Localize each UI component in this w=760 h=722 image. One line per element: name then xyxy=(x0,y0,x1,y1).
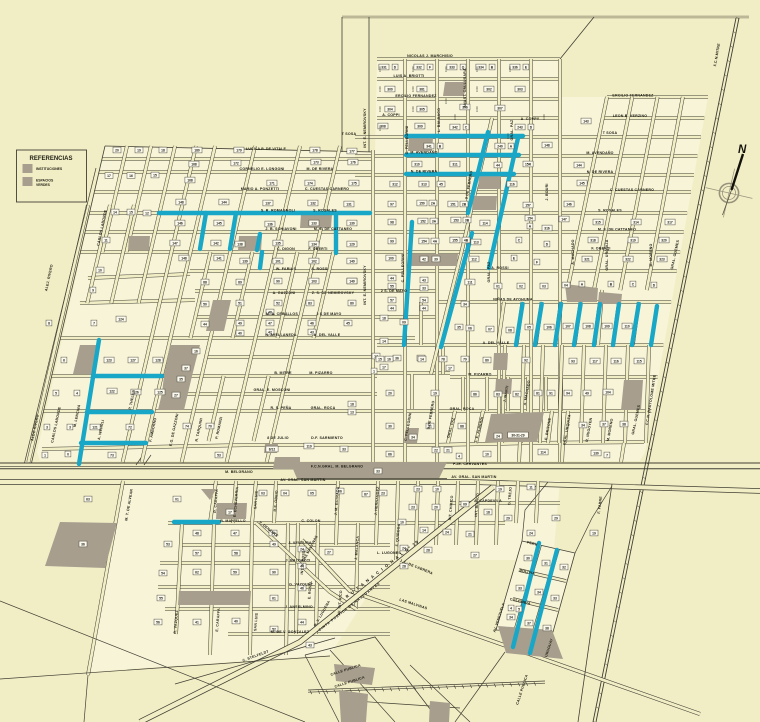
svg-text:117: 117 xyxy=(592,359,597,363)
svg-text:174: 174 xyxy=(307,181,313,185)
svg-text:LUIS A. BRIOTTI: LUIS A. BRIOTTI xyxy=(393,74,424,78)
svg-text:94: 94 xyxy=(566,391,570,395)
svg-text:100: 100 xyxy=(388,256,394,260)
svg-text:149: 149 xyxy=(349,259,355,263)
svg-text:09: 09 xyxy=(463,502,467,506)
svg-text:34: 34 xyxy=(411,435,415,439)
svg-text:CORNELIO E. LONGONI: CORNELIO E. LONGONI xyxy=(240,167,285,171)
svg-text:116: 116 xyxy=(509,182,514,186)
svg-text:15: 15 xyxy=(378,357,382,361)
svg-text:C. COLON: C. COLON xyxy=(301,519,320,523)
svg-text:58: 58 xyxy=(234,551,238,555)
svg-text:57: 57 xyxy=(195,551,199,555)
svg-text:GRAL. E. MOSCONI: GRAL. E. MOSCONI xyxy=(254,388,291,392)
svg-text:104: 104 xyxy=(605,390,611,394)
svg-text:336: 336 xyxy=(512,65,518,69)
svg-text:01: 01 xyxy=(175,497,179,501)
svg-text:168: 168 xyxy=(191,162,197,166)
svg-text:35: 35 xyxy=(179,377,183,381)
svg-text:AV. GRAL. SAN MARTIN: AV. GRAL. SAN MARTIN xyxy=(451,475,496,479)
svg-text:307: 307 xyxy=(497,106,503,110)
svg-text:168: 168 xyxy=(187,178,193,182)
svg-text:111: 111 xyxy=(467,280,472,284)
svg-text:INT. E. NEMIROVSKY: INT. E. NEMIROVSKY xyxy=(363,108,367,148)
svg-text:240: 240 xyxy=(497,144,503,148)
svg-text:32: 32 xyxy=(562,565,566,569)
svg-text:20: 20 xyxy=(434,505,438,509)
svg-text:91: 91 xyxy=(549,391,553,395)
svg-text:137: 137 xyxy=(265,201,271,205)
svg-text:63: 63 xyxy=(86,497,90,501)
svg-text:178: 178 xyxy=(312,148,318,152)
svg-text:177: 177 xyxy=(349,149,355,153)
svg-text:INSTITUCIONES: INSTITUCIONES xyxy=(36,167,63,171)
svg-text:C. CUESTAS CARNERO: C. CUESTAS CARNERO xyxy=(305,187,349,191)
svg-text:MARIO A. PONZETTI: MARIO A. PONZETTI xyxy=(241,187,280,191)
svg-text:318: 318 xyxy=(590,238,596,242)
svg-text:332: 332 xyxy=(416,65,422,69)
svg-text:320: 320 xyxy=(661,238,667,242)
svg-text:103: 103 xyxy=(311,279,317,283)
svg-text:34: 34 xyxy=(463,302,467,306)
svg-text:4A: 4A xyxy=(433,239,438,243)
svg-text:148: 148 xyxy=(178,200,184,204)
svg-text:M. DE RIVERA: M. DE RIVERA xyxy=(307,167,334,171)
svg-text:1000: 1000 xyxy=(411,66,415,72)
svg-text:M. E. DE CATTANEO: M. E. DE CATTANEO xyxy=(598,228,636,232)
svg-text:10: 10 xyxy=(98,268,102,272)
svg-text:127: 127 xyxy=(130,358,136,362)
svg-text:20: 20 xyxy=(388,391,392,395)
svg-text:15R: 15R xyxy=(525,162,532,166)
svg-text:88: 88 xyxy=(203,280,207,284)
svg-text:304: 304 xyxy=(387,107,393,111)
svg-text:13: 13 xyxy=(350,410,354,414)
svg-text:116: 116 xyxy=(613,359,618,363)
svg-text:7: 7 xyxy=(93,321,95,325)
svg-text:334: 334 xyxy=(478,65,484,69)
svg-text:S. ROSALES: S. ROSALES xyxy=(598,209,622,213)
svg-text:C. DIGON: C. DIGON xyxy=(277,247,295,251)
svg-text:F.JE. CERVANTES: F.JE. CERVANTES xyxy=(453,462,487,466)
svg-text:149: 149 xyxy=(349,279,355,283)
svg-text:1000: 1000 xyxy=(378,106,382,112)
svg-text:139: 139 xyxy=(242,259,248,263)
svg-text:147: 147 xyxy=(172,241,178,245)
svg-text:78: 78 xyxy=(441,357,445,361)
svg-text:309: 309 xyxy=(417,124,423,128)
svg-text:F: F xyxy=(536,260,538,264)
svg-text:M. BELGRANO: M. BELGRANO xyxy=(225,470,253,474)
svg-text:15: 15 xyxy=(153,173,157,177)
svg-text:243: 243 xyxy=(517,125,523,129)
svg-text:43: 43 xyxy=(422,278,426,282)
svg-text:38: 38 xyxy=(545,626,549,630)
svg-text:80: 80 xyxy=(485,358,489,362)
svg-text:99: 99 xyxy=(390,239,394,243)
svg-text:19: 19 xyxy=(433,391,437,395)
svg-text:40: 40 xyxy=(238,331,242,335)
svg-text:09: 09 xyxy=(402,320,406,324)
svg-text:37: 37 xyxy=(184,366,188,370)
svg-text:49: 49 xyxy=(238,321,242,325)
svg-text:17: 17 xyxy=(107,174,111,178)
svg-text:1000: 1000 xyxy=(475,66,479,72)
svg-text:29: 29 xyxy=(554,516,558,520)
svg-text:136: 136 xyxy=(267,222,273,226)
svg-text:04: 04 xyxy=(283,491,287,495)
svg-text:55: 55 xyxy=(390,284,394,288)
svg-text:GRAL. ROCA: GRAL. ROCA xyxy=(311,406,336,410)
svg-text:21: 21 xyxy=(468,532,472,536)
svg-text:315: 315 xyxy=(595,220,601,224)
svg-text:A. MACHADO: A. MACHADO xyxy=(571,239,575,264)
svg-text:145: 145 xyxy=(216,221,222,225)
svg-text:146: 146 xyxy=(177,221,183,225)
svg-text:112: 112 xyxy=(471,257,476,261)
svg-text:130: 130 xyxy=(593,451,599,455)
svg-text:147: 147 xyxy=(561,217,567,221)
svg-text:24: 24 xyxy=(529,531,533,535)
svg-text:154: 154 xyxy=(527,216,533,220)
svg-text:173: 173 xyxy=(313,160,319,164)
svg-text:44: 44 xyxy=(203,322,207,326)
svg-text:88: 88 xyxy=(460,424,464,428)
svg-text:92: 92 xyxy=(524,358,528,362)
svg-text:1000: 1000 xyxy=(508,66,512,72)
svg-text:28: 28 xyxy=(426,548,430,552)
svg-text:311: 311 xyxy=(452,162,457,166)
svg-text:2 S. DE MAYO: 2 S. DE MAYO xyxy=(381,289,407,293)
svg-text:124: 124 xyxy=(118,317,124,321)
svg-text:128: 128 xyxy=(155,358,161,362)
svg-text:34: 34 xyxy=(537,590,541,594)
svg-text:83: 83 xyxy=(496,392,500,396)
svg-text:15: 15 xyxy=(129,210,133,214)
svg-text:314: 314 xyxy=(633,220,639,224)
svg-text:175: 175 xyxy=(351,181,357,185)
svg-text:A. GAZZONI: A. GAZZONI xyxy=(273,291,296,295)
svg-text:146: 146 xyxy=(566,202,572,206)
svg-text:72: 72 xyxy=(128,425,132,429)
svg-text:62: 62 xyxy=(195,570,199,574)
svg-text:30: 30 xyxy=(526,556,530,560)
svg-text:93: 93 xyxy=(571,359,575,363)
svg-text:11: 11 xyxy=(104,238,108,242)
svg-text:172: 172 xyxy=(233,161,239,165)
svg-text:144: 144 xyxy=(576,163,582,167)
svg-text:119: 119 xyxy=(306,444,311,448)
svg-text:125: 125 xyxy=(157,390,163,394)
svg-text:B. MITRE: B. MITRE xyxy=(274,371,292,375)
svg-text:M. DE V. GONZALEZ: M. DE V. GONZALEZ xyxy=(271,630,310,634)
svg-text:44: 44 xyxy=(390,306,394,310)
svg-text:INT. E. NEMIROVSKY: INT. E. NEMIROVSKY xyxy=(363,265,367,305)
svg-text:39: 39 xyxy=(434,257,438,261)
svg-text:38: 38 xyxy=(622,422,626,426)
svg-text:1000: 1000 xyxy=(444,66,448,72)
svg-text:ERCILIO FERNANDEZ: ERCILIO FERNANDEZ xyxy=(612,94,654,98)
svg-text:19: 19 xyxy=(498,487,502,491)
svg-text:M. PIZARRO: M. PIZARRO xyxy=(468,373,491,377)
svg-text:1000: 1000 xyxy=(475,86,479,92)
svg-text:49: 49 xyxy=(585,391,589,395)
svg-text:157: 157 xyxy=(525,203,531,207)
svg-text:S. R. ROMAGNOLI: S. R. ROMAGNOLI xyxy=(261,209,295,213)
svg-text:1000: 1000 xyxy=(411,86,415,92)
svg-text:F: F xyxy=(429,65,431,69)
svg-text:331: 331 xyxy=(381,65,387,69)
svg-text:148: 148 xyxy=(544,143,550,147)
svg-text:45: 45 xyxy=(439,182,443,186)
svg-text:23: 23 xyxy=(381,491,385,495)
svg-text:46: 46 xyxy=(310,321,314,325)
svg-text:179: 179 xyxy=(236,148,242,152)
svg-text:148: 148 xyxy=(181,256,187,260)
svg-text:A. ROSSI: A. ROSSI xyxy=(311,267,328,271)
svg-text:33: 33 xyxy=(553,596,557,600)
svg-text:37: 37 xyxy=(527,621,531,625)
svg-text:90: 90 xyxy=(272,570,276,574)
svg-text:61: 61 xyxy=(272,596,276,600)
svg-text:89: 89 xyxy=(238,280,242,284)
svg-text:180: 180 xyxy=(194,148,200,152)
svg-text:VERDES: VERDES xyxy=(36,183,51,187)
svg-text:7: 7 xyxy=(606,453,608,457)
svg-text:123: 123 xyxy=(106,358,112,362)
svg-text:144: 144 xyxy=(221,200,227,204)
svg-text:30: 30 xyxy=(388,424,392,428)
svg-text:323: 323 xyxy=(659,257,665,261)
svg-text:316: 316 xyxy=(544,226,550,230)
svg-text:48: 48 xyxy=(195,531,199,535)
svg-text:M. A. CEBALLOS: M. A. CEBALLOS xyxy=(266,312,298,316)
svg-text:10: 10 xyxy=(435,487,439,491)
svg-text:LEON B. VERZINO: LEON B. VERZINO xyxy=(613,114,648,118)
svg-text:4: 4 xyxy=(510,606,512,610)
svg-text:342: 342 xyxy=(452,125,458,129)
svg-text:82: 82 xyxy=(515,392,519,396)
svg-text:0: 0 xyxy=(67,452,69,456)
svg-text:106: 106 xyxy=(546,325,552,329)
svg-text:03: 03 xyxy=(542,284,546,288)
svg-text:14: 14 xyxy=(382,339,386,343)
svg-text:1000: 1000 xyxy=(411,106,415,112)
svg-text:50: 50 xyxy=(203,302,207,306)
svg-text:44: 44 xyxy=(390,276,394,280)
svg-text:35: 35 xyxy=(457,325,461,329)
svg-text:2A: 2A xyxy=(431,201,436,205)
svg-text:43: 43 xyxy=(308,643,312,647)
svg-text:176: 176 xyxy=(350,160,356,164)
svg-text:F.C.N.GRAL. M. BELGRANO: F.C.N.GRAL. M. BELGRANO xyxy=(311,465,363,469)
svg-text:87: 87 xyxy=(364,492,368,496)
svg-text:05: 05 xyxy=(310,491,314,495)
svg-text:135: 135 xyxy=(275,241,281,245)
svg-text:53: 53 xyxy=(166,542,170,546)
svg-text:GRAL. ROCA: GRAL. ROCA xyxy=(450,407,475,411)
svg-text:44: 44 xyxy=(422,306,426,310)
svg-text:31: 31 xyxy=(544,561,548,565)
svg-text:80: 80 xyxy=(350,301,354,305)
svg-text:153: 153 xyxy=(453,218,459,222)
svg-text:19: 19 xyxy=(137,148,141,152)
svg-text:322: 322 xyxy=(625,257,631,261)
svg-text:28: 28 xyxy=(402,564,406,568)
svg-text:21: 21 xyxy=(446,448,450,452)
svg-text:C. PELLEGRINI: C. PELLEGRINI xyxy=(401,254,405,283)
svg-text:121: 121 xyxy=(92,425,98,429)
svg-text:16: 16 xyxy=(387,357,391,361)
svg-text:303: 303 xyxy=(517,87,523,91)
svg-text:46: 46 xyxy=(300,586,304,590)
svg-text:14: 14 xyxy=(422,528,426,532)
svg-text:57: 57 xyxy=(390,298,394,302)
svg-text:3: 3 xyxy=(46,425,48,429)
svg-text:56: 56 xyxy=(156,620,160,624)
svg-text:341: 341 xyxy=(426,144,432,148)
svg-text:8: 8 xyxy=(48,321,50,325)
svg-text:51: 51 xyxy=(238,301,242,305)
svg-text:36: 36 xyxy=(81,542,85,546)
svg-text:N: N xyxy=(738,144,747,156)
svg-text:N. AVELLANEDA: N. AVELLANEDA xyxy=(265,333,297,337)
svg-text:5: 5 xyxy=(518,607,520,611)
svg-text:GRAL. URQUIZA: GRAL. URQUIZA xyxy=(605,239,609,270)
svg-text:52: 52 xyxy=(276,301,280,305)
svg-text:M. E. DE CATTANEO: M. E. DE CATTANEO xyxy=(314,227,352,231)
svg-text:40: 40 xyxy=(234,619,238,623)
svg-text:155: 155 xyxy=(452,238,458,242)
svg-text:T SOSA: T SOSA xyxy=(603,131,618,135)
svg-text:22: 22 xyxy=(434,448,438,452)
svg-text:1000: 1000 xyxy=(542,114,546,120)
svg-text:J. ANSELMINO: J. ANSELMINO xyxy=(285,605,313,609)
svg-text:302: 302 xyxy=(486,87,492,91)
svg-text:A. DEL VALLE: A. DEL VALLE xyxy=(314,333,341,337)
svg-text:81: 81 xyxy=(536,391,540,395)
svg-text:134: 134 xyxy=(311,242,317,246)
svg-text:110: 110 xyxy=(624,324,629,328)
svg-text:20: 20 xyxy=(115,148,119,152)
svg-text:17: 17 xyxy=(228,510,232,514)
svg-text:102: 102 xyxy=(311,259,317,263)
svg-text:47: 47 xyxy=(268,321,272,325)
svg-text:J. VENTURA: J. VENTURA xyxy=(288,541,312,545)
svg-text:A. ROSSI: A. ROSSI xyxy=(491,266,508,270)
svg-text:107: 107 xyxy=(565,324,571,328)
svg-text:NIÑAS DE AYOHUMA: NIÑAS DE AYOHUMA xyxy=(493,297,533,302)
svg-text:129: 129 xyxy=(349,242,355,246)
svg-text:109: 109 xyxy=(604,324,610,328)
svg-text:01: 01 xyxy=(496,284,500,288)
svg-text:36: 36 xyxy=(395,356,399,360)
svg-text:97: 97 xyxy=(390,202,394,206)
svg-text:4B: 4B xyxy=(464,238,469,242)
svg-text:M. AVENDAÑO: M. AVENDAÑO xyxy=(586,150,613,155)
svg-text:R. S. PEÑA: R. S. PEÑA xyxy=(271,405,292,410)
svg-text:108: 108 xyxy=(585,324,591,328)
svg-text:17: 17 xyxy=(382,365,386,369)
svg-text:A. COPPY: A. COPPY xyxy=(521,117,540,121)
svg-text:6: 6 xyxy=(63,358,65,362)
svg-text:24: 24 xyxy=(445,530,449,534)
svg-text:27: 27 xyxy=(327,550,331,554)
svg-text:07: 07 xyxy=(488,327,492,331)
svg-text:J. B. SCHIAVONI: J. B. SCHIAVONI xyxy=(265,227,296,231)
svg-text:1000: 1000 xyxy=(378,66,382,72)
svg-text:44: 44 xyxy=(496,163,500,167)
svg-text:23: 23 xyxy=(411,505,415,509)
svg-text:73: 73 xyxy=(110,453,114,457)
svg-text:N. DE RIVERA: N. DE RIVERA xyxy=(411,170,438,174)
svg-text:REFERENCIAS: REFERENCIAS xyxy=(29,156,72,162)
svg-text:A. DEL VALLE: A. DEL VALLE xyxy=(483,341,510,345)
svg-text:C. PELLEGRINI: C. PELLEGRINI xyxy=(405,126,409,155)
svg-text:S. ROSALES: S. ROSALES xyxy=(313,209,337,213)
svg-text:D.F. SARMIENTO: D.F. SARMIENTO xyxy=(311,436,343,440)
svg-text:59: 59 xyxy=(233,570,237,574)
svg-text:3: 3 xyxy=(69,425,71,429)
svg-text:83: 83 xyxy=(308,301,312,305)
svg-text:18: 18 xyxy=(350,402,354,406)
svg-text:LUCILA P. DE VITALE: LUCILA P. DE VITALE xyxy=(246,147,287,151)
svg-text:150: 150 xyxy=(419,201,425,205)
svg-text:14: 14 xyxy=(420,357,424,361)
svg-text:17: 17 xyxy=(448,366,452,370)
svg-text:M. MORENO: M. MORENO xyxy=(649,244,653,267)
svg-text:N. DE RIVERA: N. DE RIVERA xyxy=(587,170,614,174)
svg-text:GRAL. PAZ: GRAL. PAZ xyxy=(510,119,514,141)
svg-text:115: 115 xyxy=(636,359,641,363)
svg-text:141: 141 xyxy=(216,256,222,260)
svg-text:41: 41 xyxy=(195,620,199,624)
svg-text:W. FARIAS: W. FARIAS xyxy=(276,267,297,271)
svg-text:142: 142 xyxy=(213,241,219,245)
svg-text:27: 27 xyxy=(174,393,178,397)
svg-text:30-31-29: 30-31-29 xyxy=(511,433,524,437)
svg-text:8 DE JULIO: 8 DE JULIO xyxy=(267,436,289,440)
svg-text:29: 29 xyxy=(506,516,510,520)
svg-text:98: 98 xyxy=(390,220,394,224)
svg-text:C. CUESTAS CARNERO: C. CUESTAS CARNERO xyxy=(610,188,654,192)
svg-text:3B: 3B xyxy=(465,218,470,222)
svg-text:44: 44 xyxy=(300,620,304,624)
svg-text:34: 34 xyxy=(581,423,585,427)
svg-text:M. AVENDAÑO: M. AVENDAÑO xyxy=(410,150,437,155)
svg-text:16: 16 xyxy=(194,349,198,353)
svg-text:55: 55 xyxy=(159,596,163,600)
svg-text:12: 12 xyxy=(145,211,149,215)
svg-text:138: 138 xyxy=(237,242,243,246)
svg-text:02: 02 xyxy=(519,284,523,288)
svg-text:GRAL. PAZ: GRAL. PAZ xyxy=(487,261,491,283)
svg-text:130: 130 xyxy=(349,221,355,225)
svg-text:305: 305 xyxy=(419,107,425,111)
svg-text:33: 33 xyxy=(518,586,522,590)
svg-text:14: 14 xyxy=(113,210,117,214)
svg-text:37: 37 xyxy=(602,422,606,426)
svg-text:J. BOURI: J. BOURI xyxy=(545,183,549,200)
svg-text:L. BALBACO: L. BALBACO xyxy=(437,108,441,132)
svg-text:2B: 2B xyxy=(462,202,467,206)
svg-text:5: 5 xyxy=(55,391,57,395)
svg-text:1000: 1000 xyxy=(378,125,382,131)
svg-text:132: 132 xyxy=(310,201,316,205)
svg-text:154: 154 xyxy=(421,239,427,243)
svg-text:34: 34 xyxy=(509,615,513,619)
svg-text:114: 114 xyxy=(540,450,545,454)
